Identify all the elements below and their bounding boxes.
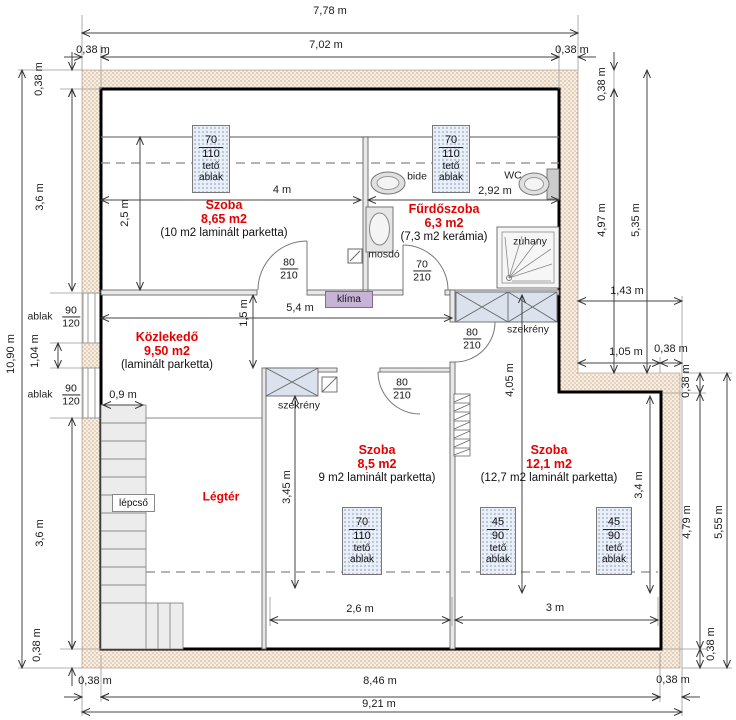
dim-label: 4 m <box>273 185 291 197</box>
dim-label: 3,45 m <box>282 470 294 504</box>
door-size-label: 80210 <box>463 326 481 351</box>
side-window-label: ablak <box>27 389 52 400</box>
dim-label: 3,4 m <box>634 471 646 499</box>
sink-label: mosdó <box>368 249 400 260</box>
roof-window-label: 45 90 tető ablak <box>596 507 632 575</box>
dim-label: 0,38 m <box>706 627 718 661</box>
ladder-icon <box>454 394 470 456</box>
dim-label: 0,38 m <box>76 45 110 57</box>
dim-label: 5,55 m <box>714 505 726 539</box>
dim-label: 5,35 m <box>631 203 643 237</box>
dim-label: 0,38 m <box>34 62 46 96</box>
dim-label: 0,38 m <box>656 675 690 687</box>
roof-window-label: 70 110 tető ablak <box>342 507 382 575</box>
sink-icon <box>366 207 393 252</box>
door-size-label: 80210 <box>280 256 298 281</box>
room-label-kozlekedo: Közlekedő 9,50 m2 (laminált parketta) <box>121 330 213 373</box>
floor-drain-icon <box>348 249 362 263</box>
dim-label: 4,79 m <box>682 505 694 539</box>
dim-label: 9,21 m <box>362 699 396 711</box>
room-label-szoba1: Szoba 8,65 m2 (10 m2 laminált parketta) <box>160 198 287 241</box>
room-label-legter: Légtér <box>203 491 240 504</box>
dim-label: 7,02 m <box>309 40 343 52</box>
dim-label: 7,78 m <box>313 6 347 18</box>
dim-label: 0,38 m <box>32 628 44 662</box>
dim-label: 1,04 m <box>30 334 42 368</box>
ac-unit-label: klíma <box>325 291 373 308</box>
room-label-furdoszoba: Fűrdőszoba 6,3 m2 (7,3 m2 kerámia) <box>401 202 488 245</box>
roof-window-label: 70 110 tető ablak <box>192 125 230 193</box>
dim-label: 10,90 m <box>6 334 18 374</box>
dim-label: 1,43 m <box>610 286 644 298</box>
dim-label: 1,05 m <box>609 347 643 359</box>
dim-label: 3 m <box>546 603 564 615</box>
dim-label: 2,6 m <box>346 604 374 616</box>
dim-label: 0,38 m <box>78 676 112 688</box>
dim-label: 3,6 m <box>35 183 47 211</box>
shower-label: zuhany <box>513 236 547 247</box>
wc-label: WC <box>504 170 522 181</box>
dim-label: 0,38 m <box>555 45 589 57</box>
roof-window-label: 45 90 tető ablak <box>480 507 516 575</box>
room-label-szoba2: Szoba 8,5 m2 9 m2 laminált parketta) <box>319 443 436 486</box>
dim-label: 1,5 m <box>239 299 251 327</box>
side-window-label: ablak <box>27 311 52 322</box>
stairs-label: lépcső <box>112 494 155 512</box>
wardrobe-label: szekrény <box>507 324 549 335</box>
side-window-size: 90120 <box>62 382 80 407</box>
door-size-label: 70210 <box>413 258 431 283</box>
dim-label: 0,38 m <box>654 344 688 356</box>
wardrobe-label: szekrény <box>278 400 320 411</box>
dim-label: 3,6 m <box>35 519 47 547</box>
floor-plan: 7,78 m 7,02 m 0,38 m 0,38 m 0,38 m 3,6 m… <box>0 0 736 720</box>
dim-label: 4,97 m <box>597 203 609 237</box>
dim-label: 0,9 m <box>109 390 137 402</box>
bidet-label: bide <box>407 171 427 182</box>
dim-label: 2,5 m <box>120 199 132 227</box>
bidet-icon <box>371 172 405 194</box>
roof-window-label: 70 110 tető ablak <box>432 125 470 193</box>
dim-label: 2,92 m <box>478 186 512 198</box>
dim-label: 0,38 m <box>597 67 609 101</box>
dim-label: 8,46 m <box>363 676 397 688</box>
door-size-label: 80210 <box>393 376 411 401</box>
dim-label: 4,05 m <box>505 363 517 397</box>
dim-label: 0,38 m <box>681 364 693 398</box>
dim-label: 5,4 m <box>286 303 314 315</box>
side-window-size: 90120 <box>62 304 80 329</box>
room-label-szoba3: Szoba 12,1 m2 (12,7 m2 laminált parketta… <box>481 443 618 486</box>
